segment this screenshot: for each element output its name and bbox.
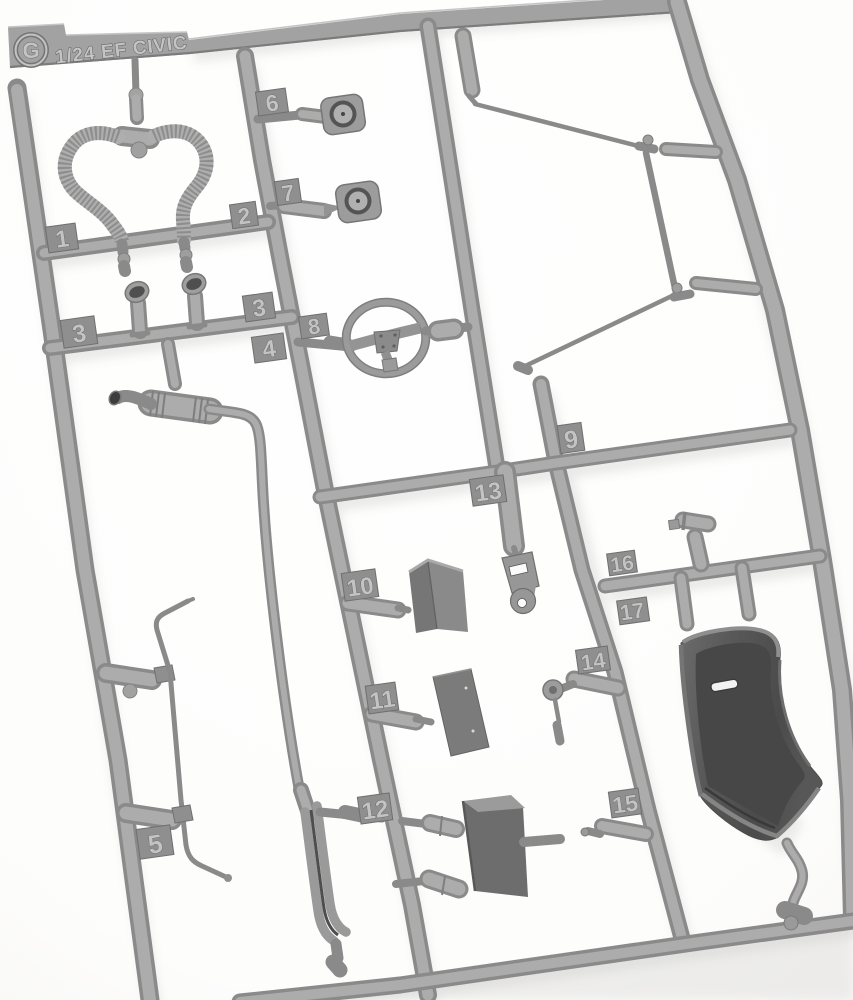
svg-text:10: 10 (345, 572, 375, 602)
svg-text:11: 11 (368, 685, 397, 715)
svg-text:13: 13 (473, 477, 503, 507)
svg-text:17: 17 (618, 597, 646, 625)
svg-text:12: 12 (360, 795, 390, 825)
svg-text:16: 16 (609, 551, 635, 577)
svg-text:14: 14 (579, 647, 607, 675)
svg-text:G: G (22, 38, 39, 63)
svg-text:15: 15 (611, 789, 640, 818)
